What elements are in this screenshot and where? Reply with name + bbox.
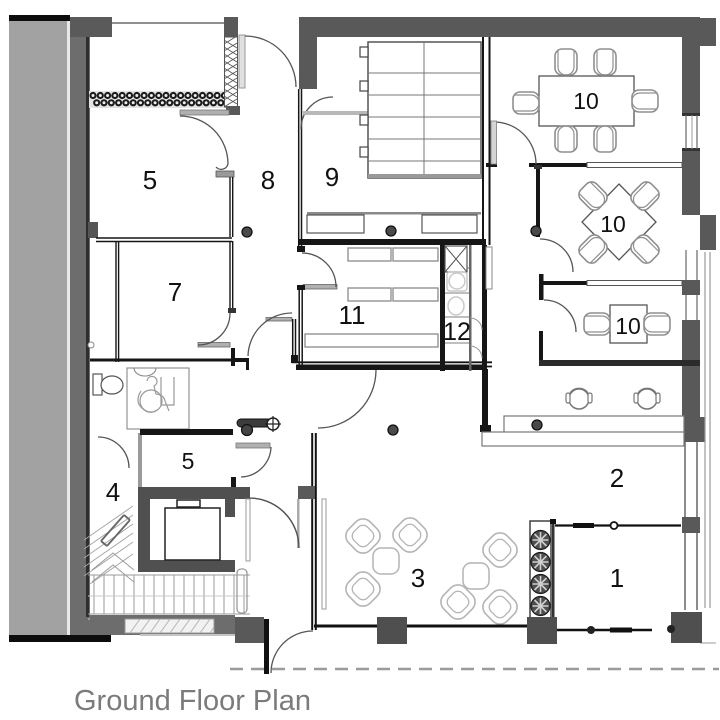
svg-text:12: 12 — [443, 318, 471, 346]
svg-text:9: 9 — [325, 162, 339, 192]
svg-text:10: 10 — [600, 211, 626, 237]
svg-text:10: 10 — [573, 88, 599, 114]
svg-text:5: 5 — [182, 448, 195, 474]
svg-text:4: 4 — [106, 477, 120, 507]
svg-text:3: 3 — [411, 563, 425, 593]
svg-text:7: 7 — [168, 277, 182, 307]
svg-text:10: 10 — [615, 313, 641, 339]
svg-text:5: 5 — [143, 165, 157, 195]
svg-text:8: 8 — [261, 165, 275, 195]
svg-text:1: 1 — [610, 563, 624, 593]
svg-text:Ground Floor Plan: Ground Floor Plan — [74, 685, 311, 717]
svg-text:2: 2 — [610, 463, 624, 493]
svg-text:11: 11 — [339, 300, 366, 330]
